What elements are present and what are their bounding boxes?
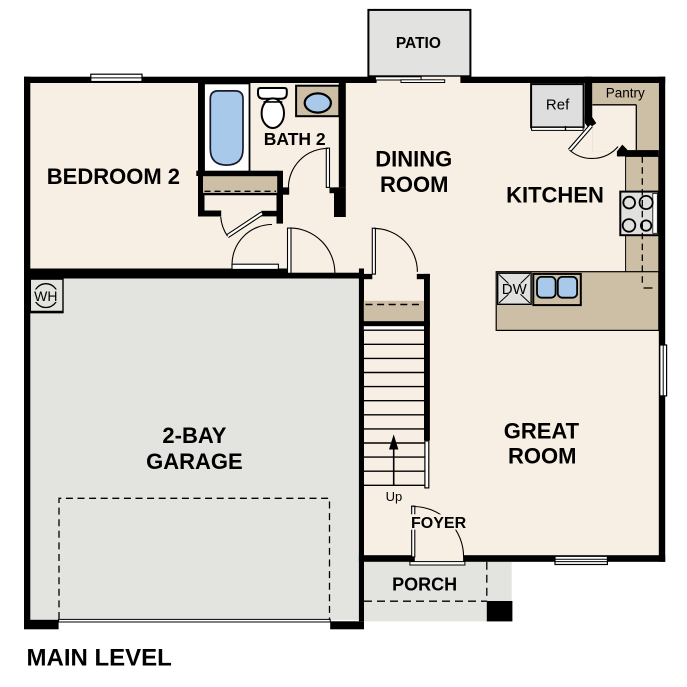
svg-text:GREAT: GREAT bbox=[504, 419, 580, 444]
svg-text:PORCH: PORCH bbox=[392, 575, 457, 595]
svg-text:WH: WH bbox=[34, 288, 57, 304]
svg-text:GARAGE: GARAGE bbox=[146, 449, 243, 474]
svg-text:Up: Up bbox=[386, 489, 403, 504]
svg-text:KITCHEN: KITCHEN bbox=[506, 182, 604, 207]
svg-text:DINING: DINING bbox=[375, 146, 452, 171]
svg-text:BATH 2: BATH 2 bbox=[264, 129, 326, 149]
svg-text:BEDROOM 2: BEDROOM 2 bbox=[47, 164, 180, 189]
svg-text:ROOM: ROOM bbox=[508, 444, 576, 469]
svg-text:PATIO: PATIO bbox=[396, 35, 441, 52]
svg-text:Ref: Ref bbox=[546, 97, 570, 114]
svg-text:MAIN LEVEL: MAIN LEVEL bbox=[27, 645, 172, 672]
svg-text:DW: DW bbox=[502, 281, 528, 298]
svg-text:ROOM: ROOM bbox=[380, 172, 448, 197]
svg-text:2-BAY: 2-BAY bbox=[162, 423, 226, 448]
svg-text:FOYER: FOYER bbox=[411, 515, 467, 532]
svg-text:Pantry: Pantry bbox=[606, 86, 645, 101]
